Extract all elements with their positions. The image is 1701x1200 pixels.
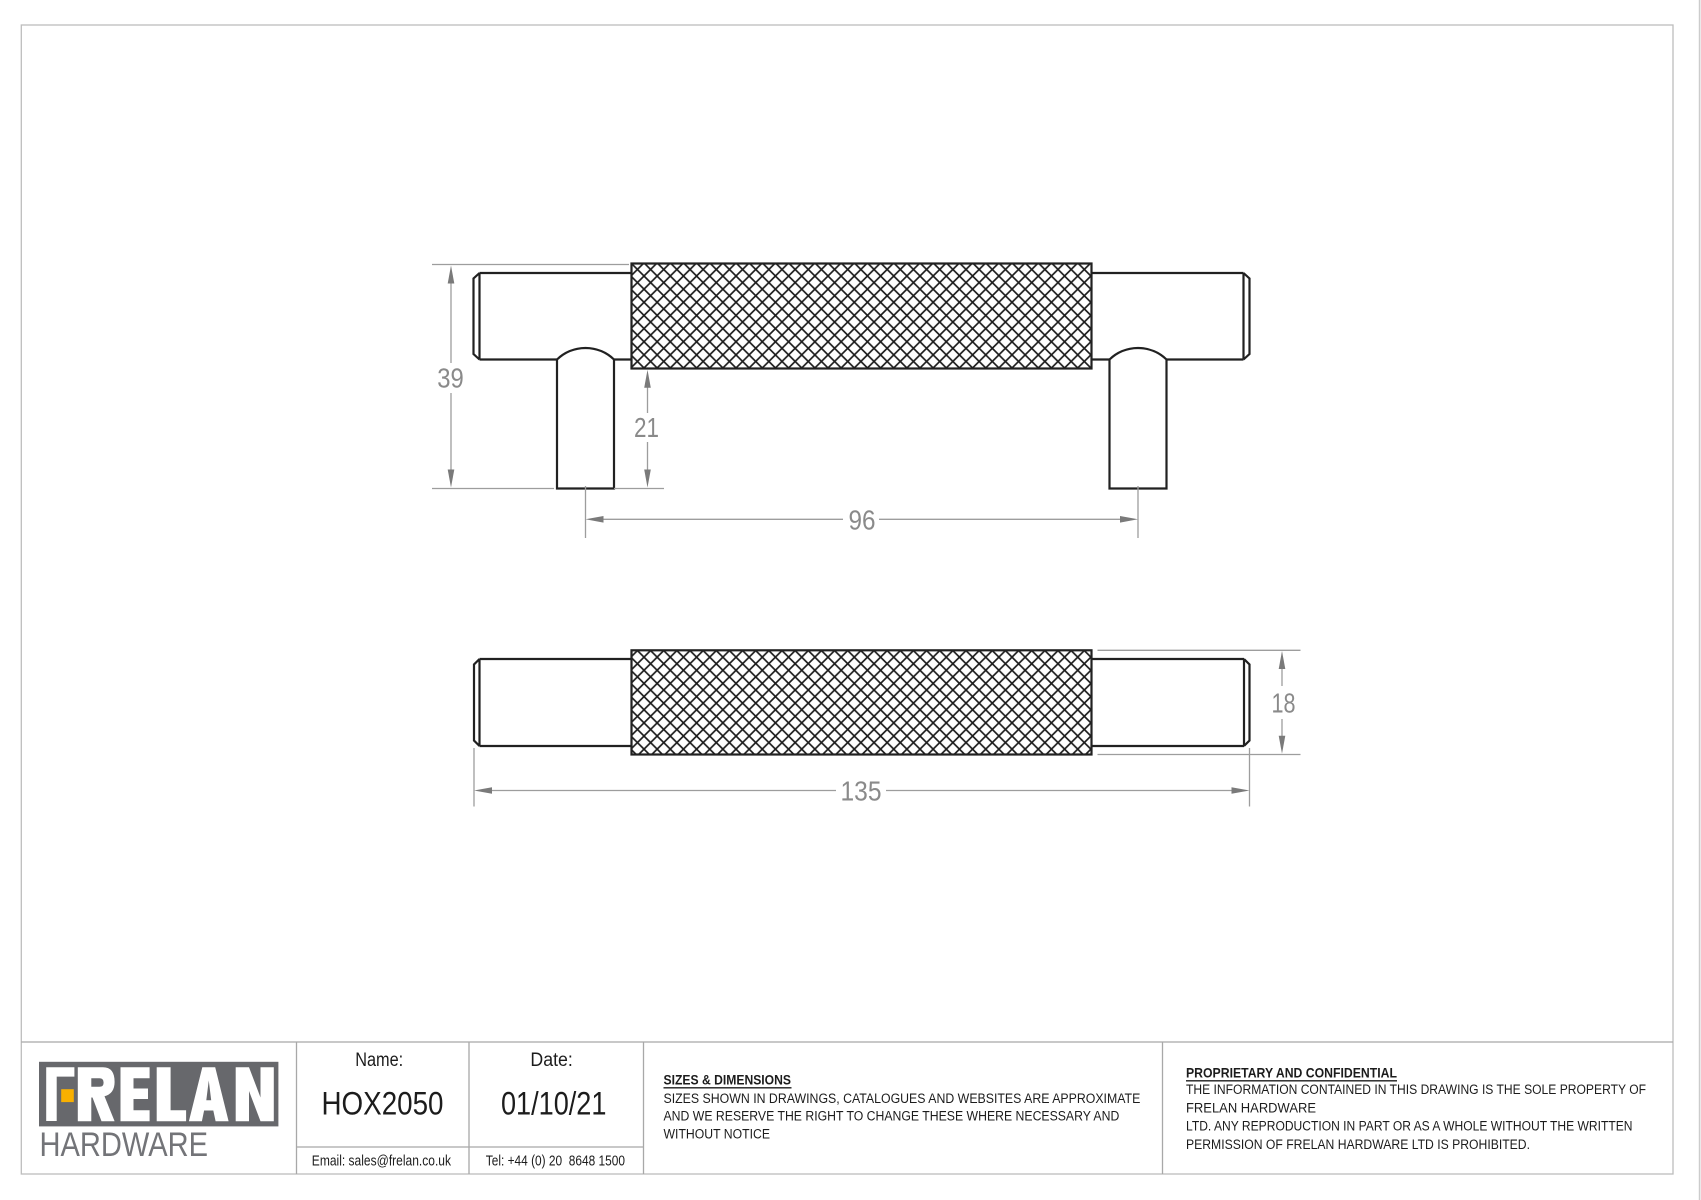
svg-text:LTD. ANY REPRODUCTION IN PART: LTD. ANY REPRODUCTION IN PART OR AS A WH… — [1186, 1119, 1633, 1134]
svg-text:Name:: Name: — [355, 1050, 403, 1071]
svg-text:Tel: +44 (0) 20 8648 1500: Tel: +44 (0) 20 8648 1500 — [486, 1153, 625, 1169]
svg-text:135: 135 — [841, 776, 882, 807]
svg-text:01/10/21: 01/10/21 — [501, 1086, 607, 1122]
svg-text:SIZES SHOWN IN DRAWINGS, CATAL: SIZES SHOWN IN DRAWINGS, CATALOGUES AND … — [664, 1091, 1141, 1106]
svg-text:AND WE RESERVE THE RIGHT TO CH: AND WE RESERVE THE RIGHT TO CHANGE THESE… — [664, 1108, 1120, 1123]
svg-text:18: 18 — [1272, 688, 1296, 719]
svg-text:PROPRIETARY AND CONFIDENTIAL: PROPRIETARY AND CONFIDENTIAL — [1186, 1065, 1397, 1081]
svg-text:THE INFORMATION CONTAINED IN T: THE INFORMATION CONTAINED IN THIS DRAWIN… — [1186, 1082, 1646, 1097]
svg-text:SIZES & DIMENSIONS: SIZES & DIMENSIONS — [664, 1072, 792, 1088]
svg-text:FRELAN HARDWARE: FRELAN HARDWARE — [1186, 1100, 1316, 1115]
svg-text:HOX2050: HOX2050 — [322, 1086, 444, 1122]
svg-text:Date:: Date: — [530, 1050, 572, 1071]
svg-text:21: 21 — [634, 412, 659, 443]
svg-text:Email: sales@frelan.co.uk: Email: sales@frelan.co.uk — [312, 1153, 452, 1169]
svg-text:39: 39 — [437, 363, 464, 394]
svg-text:HARDWARE: HARDWARE — [40, 1126, 209, 1164]
svg-text:96: 96 — [849, 505, 876, 536]
svg-text:WITHOUT NOTICE: WITHOUT NOTICE — [664, 1126, 771, 1141]
svg-text:PERMISSION OF FRELAN HARDWARE: PERMISSION OF FRELAN HARDWARE LTD IS PRO… — [1186, 1137, 1530, 1152]
